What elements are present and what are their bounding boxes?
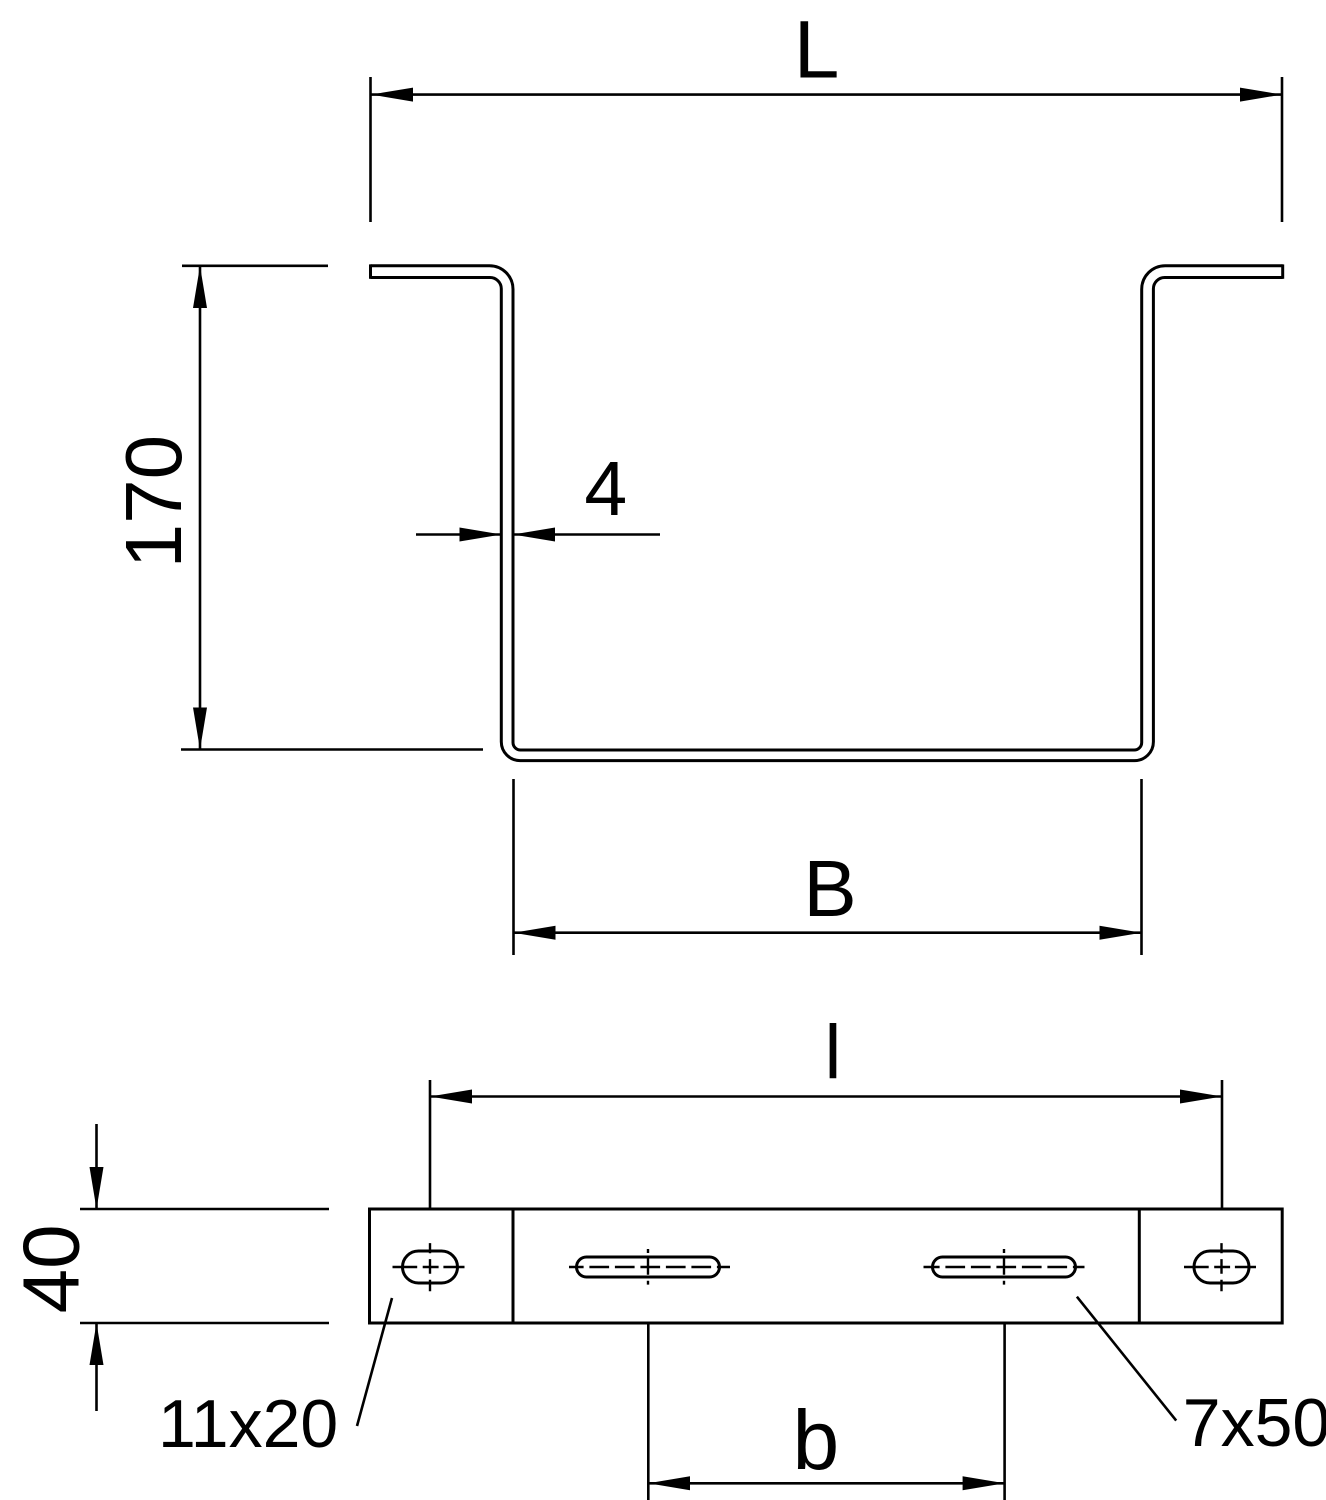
svg-text:40: 40 — [6, 1224, 95, 1313]
svg-text:170: 170 — [109, 435, 198, 568]
svg-text:l: l — [825, 1010, 842, 1095]
svg-text:B: B — [803, 844, 856, 933]
svg-text:4: 4 — [584, 446, 627, 532]
svg-text:7x50: 7x50 — [1183, 1385, 1326, 1461]
svg-text:b: b — [793, 1393, 840, 1487]
svg-text:11x20: 11x20 — [158, 1386, 338, 1462]
svg-text:L: L — [794, 5, 840, 96]
